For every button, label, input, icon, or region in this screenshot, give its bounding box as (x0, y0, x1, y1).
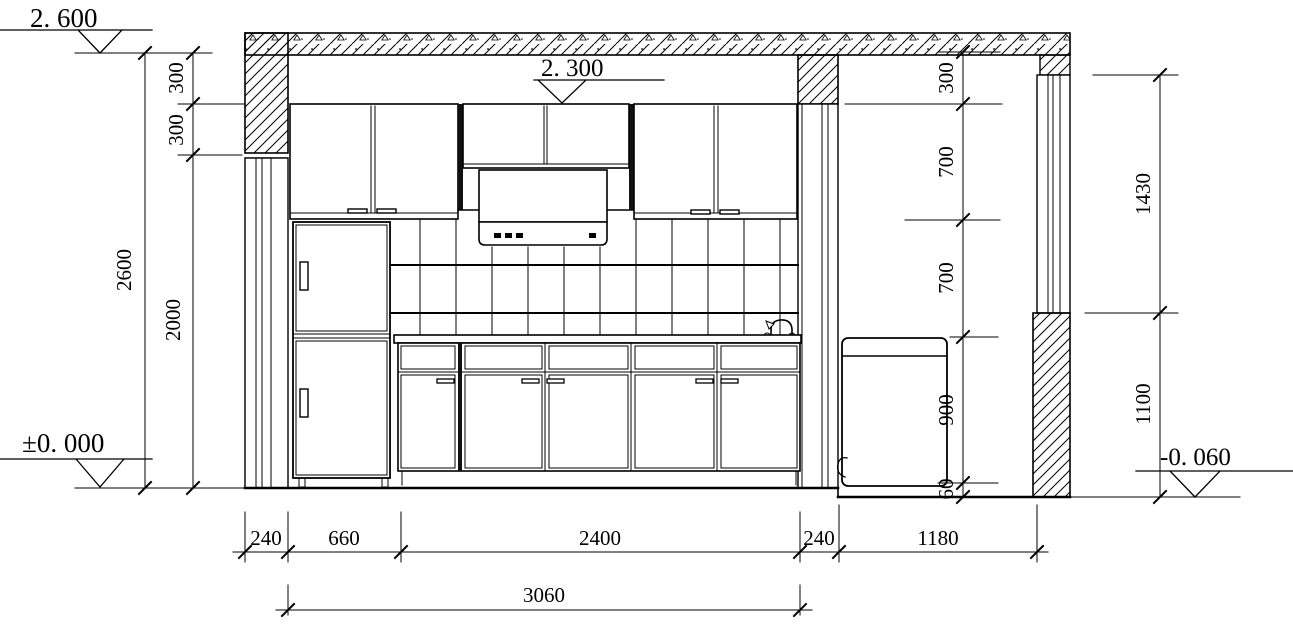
cabinet-handle (691, 210, 710, 214)
kitchen-elevation-drawing: 2. 600 2. 300 ±0. 000 -0. 060 2600 300 3… (0, 0, 1293, 625)
dim-left-2000: 2000 (161, 299, 185, 341)
dim-left-300-top: 300 (164, 62, 188, 94)
level-marker-soffit: 2. 300 (534, 55, 664, 103)
level-triangle-icon (534, 80, 664, 103)
fridge-handle (300, 389, 308, 417)
upper-cabinet-right (634, 104, 797, 219)
left-wall (245, 33, 288, 488)
level-triangle-icon (0, 30, 152, 53)
base-cabinets (398, 343, 800, 485)
dim-bottom-3060: 3060 (523, 583, 565, 607)
dim-far-1430: 1430 (1131, 173, 1155, 215)
level-triangle-icon (0, 459, 152, 487)
dim-left-300-mid: 300 (164, 114, 188, 146)
upper-cabinet-left (290, 104, 458, 219)
dim-right-300: 300 (934, 62, 958, 94)
dim-far-1100: 1100 (1131, 383, 1155, 424)
countertop (394, 335, 801, 343)
dim-right-900: 900 (934, 394, 958, 426)
level-value: 2. 600 (30, 3, 98, 33)
dim-right-700-lower: 700 (934, 262, 958, 294)
dim-bottom-2400: 2400 (579, 526, 621, 550)
freezer-door (296, 225, 387, 331)
fridge-feet (299, 478, 388, 487)
fridge-door (296, 341, 387, 475)
level-marker-floor: ±0. 000 (0, 428, 152, 487)
fridge-handle (300, 262, 308, 290)
washing-machine (838, 338, 947, 486)
dim-right-700-upper: 700 (934, 146, 958, 178)
dim-bottom-660: 660 (328, 526, 360, 550)
dim-bottom-240-right: 240 (803, 526, 835, 550)
range-hood (479, 170, 607, 245)
cabinet-handle (720, 210, 739, 214)
right-partition-wall (798, 55, 838, 488)
level-value: -0. 060 (1160, 444, 1231, 471)
upper-cabinet-middle (463, 104, 629, 168)
elevation-svg: 2. 600 2. 300 ±0. 000 -0. 060 2600 300 3… (0, 0, 1293, 625)
cabinet-stile (458, 343, 462, 471)
dim-bottom-1180: 1180 (917, 526, 958, 550)
dim-bottom-240-left: 240 (250, 526, 282, 550)
refrigerator (293, 222, 390, 487)
level-value: 2. 300 (541, 55, 604, 82)
level-value: ±0. 000 (22, 428, 104, 458)
dim-left-total: 2600 (112, 249, 136, 291)
dim-right-60: 60 (934, 479, 958, 500)
cabinet-handle (348, 209, 367, 213)
cabinet-handle (377, 209, 396, 213)
level-marker-ceiling: 2. 600 (0, 3, 152, 53)
far-right-wall (1033, 55, 1070, 497)
